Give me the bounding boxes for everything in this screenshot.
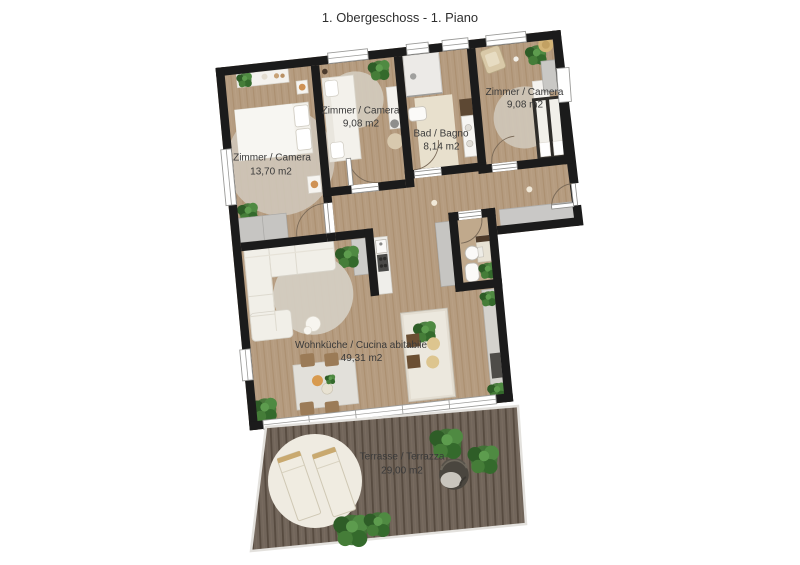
svg-text:13,70 m2: 13,70 m2: [250, 167, 292, 178]
svg-text:49,31 m2: 49,31 m2: [341, 353, 383, 364]
svg-text:Terrasse / Terrazza: Terrasse / Terrazza: [360, 452, 445, 463]
svg-text:9,08 m2: 9,08 m2: [343, 119, 380, 130]
svg-text:29,00 m2: 29,00 m2: [381, 466, 423, 477]
svg-text:Bad / Bagno: Bad / Bagno: [413, 129, 468, 140]
svg-text:9,08 m2: 9,08 m2: [507, 100, 544, 111]
svg-text:8,14 m2: 8,14 m2: [423, 142, 460, 153]
svg-text:1. Obergeschoss - 1. Piano: 1. Obergeschoss - 1. Piano: [322, 10, 478, 25]
svg-text:Zimmer / Camera: Zimmer / Camera: [322, 106, 400, 117]
svg-text:Zimmer / Camera: Zimmer / Camera: [486, 87, 564, 98]
svg-text:Zimmer / Camera: Zimmer / Camera: [233, 153, 311, 164]
svg-text:Wohnküche / Cucina abitabile: Wohnküche / Cucina abitabile: [295, 340, 428, 351]
